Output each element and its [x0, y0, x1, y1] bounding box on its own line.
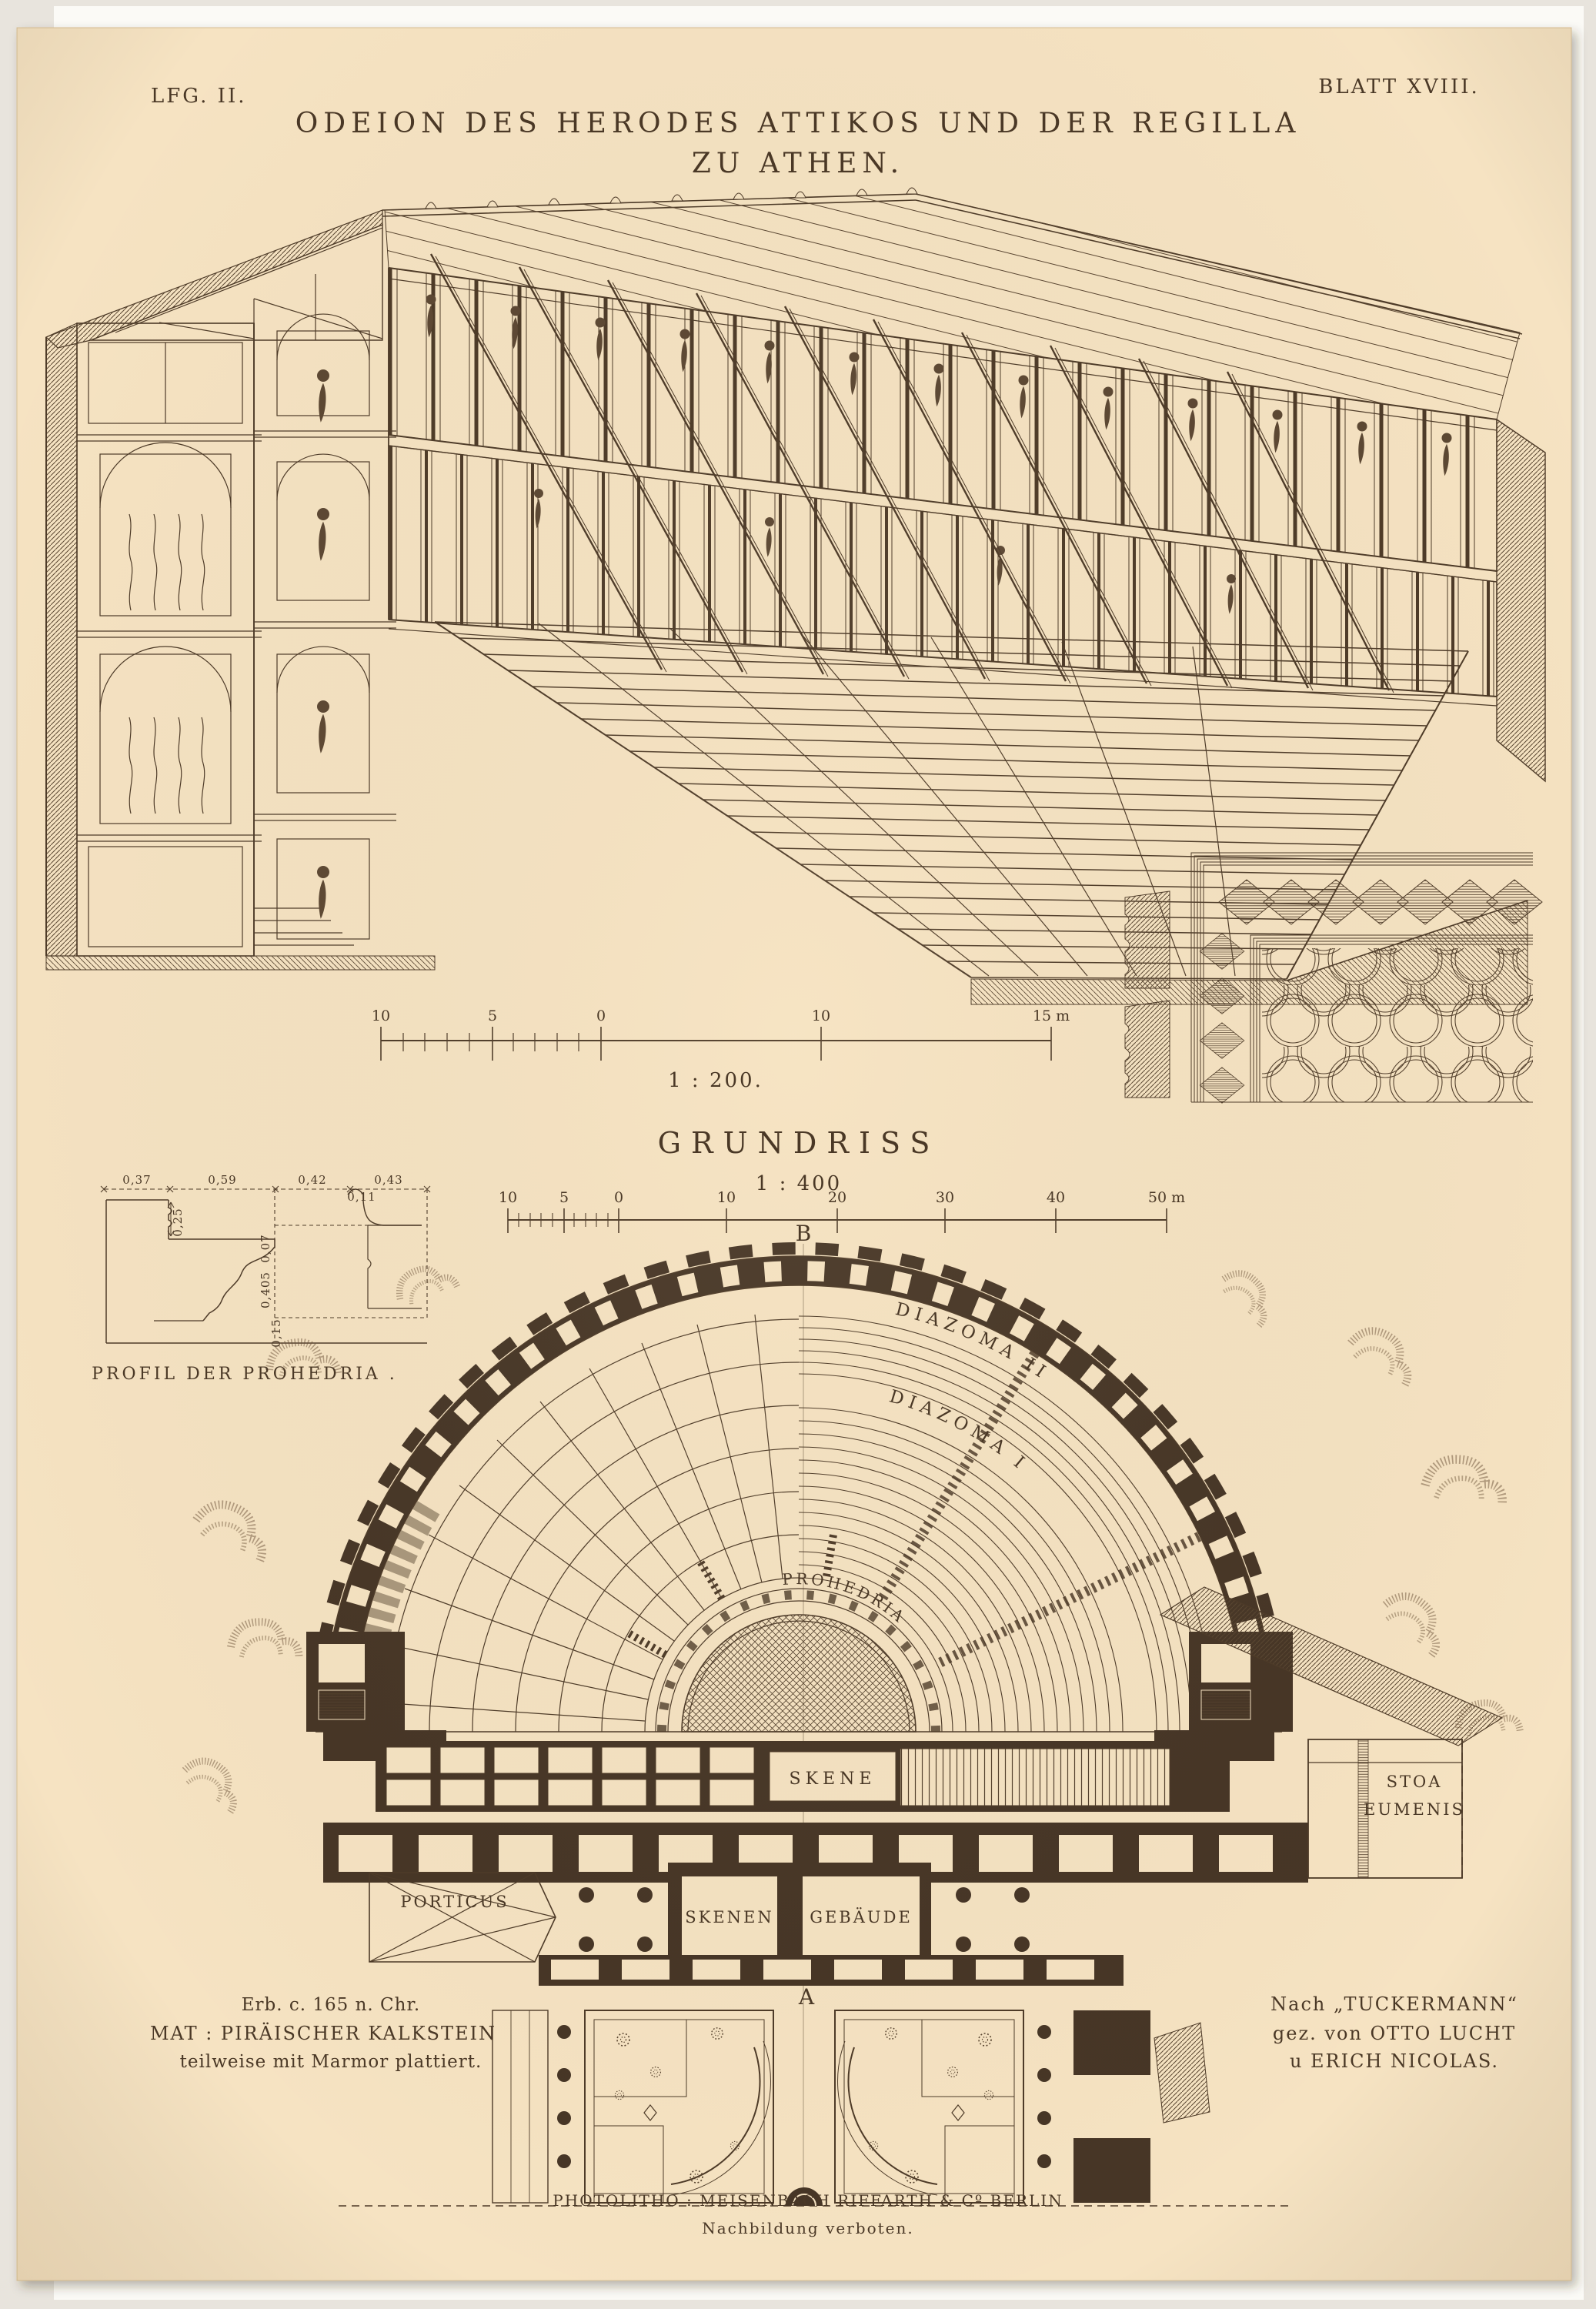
profil-caption: PROFIL DER PROHEDRIA . [92, 1365, 398, 1384]
scale200-tick-10r: 10 [812, 1007, 830, 1024]
note-right-line1: Nach „TUCKERMANN“ [1270, 1993, 1518, 2015]
profil-dim-007: 0,07 [259, 1234, 272, 1262]
scale200-tick-5: 5 [488, 1007, 497, 1024]
label-stoa-line2: EUMENIS [1364, 1800, 1465, 1819]
imprint-line2: Nachbildung verboten. [702, 2219, 913, 2237]
scale200-label: 1 : 200. [668, 1069, 763, 1092]
note-right-line2: gez. von OTTO LUCHT [1273, 2023, 1516, 2044]
scale400-tick-30: 30 [936, 1189, 954, 1206]
marker-a: A [798, 1984, 815, 2010]
sheet-label: BLATT XVIII. [1318, 75, 1480, 99]
imprint-line1: PHOTOLITHO : MEISENBACH RIFFARTH & Cº BE… [553, 2191, 1063, 2210]
scale400-tick-5: 5 [559, 1189, 569, 1206]
marker-b: B [796, 1221, 812, 1246]
scale400-tick-20: 20 [828, 1189, 846, 1206]
plan-title: GRUNDRISS [658, 1126, 940, 1160]
profil-dim-043: 0,43 [374, 1173, 402, 1187]
label-stoa-line1: STOA [1387, 1773, 1443, 1791]
note-right-line3: u ERICH NICOLAS. [1290, 2050, 1499, 2072]
profil-dim-0405: 0,405 [259, 1271, 272, 1308]
series-label: LFG. II. [151, 85, 246, 108]
label-skene: SKENE [790, 1769, 876, 1789]
scale400-tick-10l: 10 [499, 1189, 517, 1206]
scale200-tick-0: 0 [596, 1007, 606, 1024]
note-left-line1: Erb. c. 165 n. Chr. [242, 1995, 420, 2015]
scale400-tick-40: 40 [1047, 1189, 1065, 1206]
profil-dim-059: 0,59 [208, 1173, 236, 1187]
scale400-tick-50m: 50 m [1148, 1189, 1185, 1206]
note-left-line2: MAT : PIRÄISCHER KALKSTEIN [150, 2022, 496, 2044]
scale400-tick-0: 0 [614, 1189, 623, 1206]
label-porticus: PORTICUS [400, 1893, 509, 1911]
note-left-line3: teilweise mit Marmor plattiert. [180, 2052, 482, 2072]
scale400-tick-10r: 10 [717, 1189, 736, 1206]
profil-dim-025: 0,25 [171, 1208, 185, 1236]
profil-dim-011: 0,11 [347, 1190, 376, 1204]
scale200-tick-10l: 10 [372, 1007, 390, 1024]
label-gebaeude: GEBÄUDE [810, 1908, 913, 1926]
profil-dim-037: 0,37 [122, 1173, 151, 1187]
profil-dim-015: 0,15 [269, 1318, 283, 1347]
profil-dim-042: 0,42 [298, 1173, 326, 1187]
plate-scan: LFG. II. BLATT XVIII. ODEION DES HERODES… [0, 0, 1596, 2309]
scale200-tick-15m: 15 m [1033, 1007, 1070, 1024]
plate-title-line1: ODEION DES HERODES ATTIKOS UND DER REGIL… [295, 108, 1301, 139]
label-skenen: SKENEN [685, 1908, 773, 1926]
plate-title-line2: ZU ATHEN. [692, 148, 904, 179]
